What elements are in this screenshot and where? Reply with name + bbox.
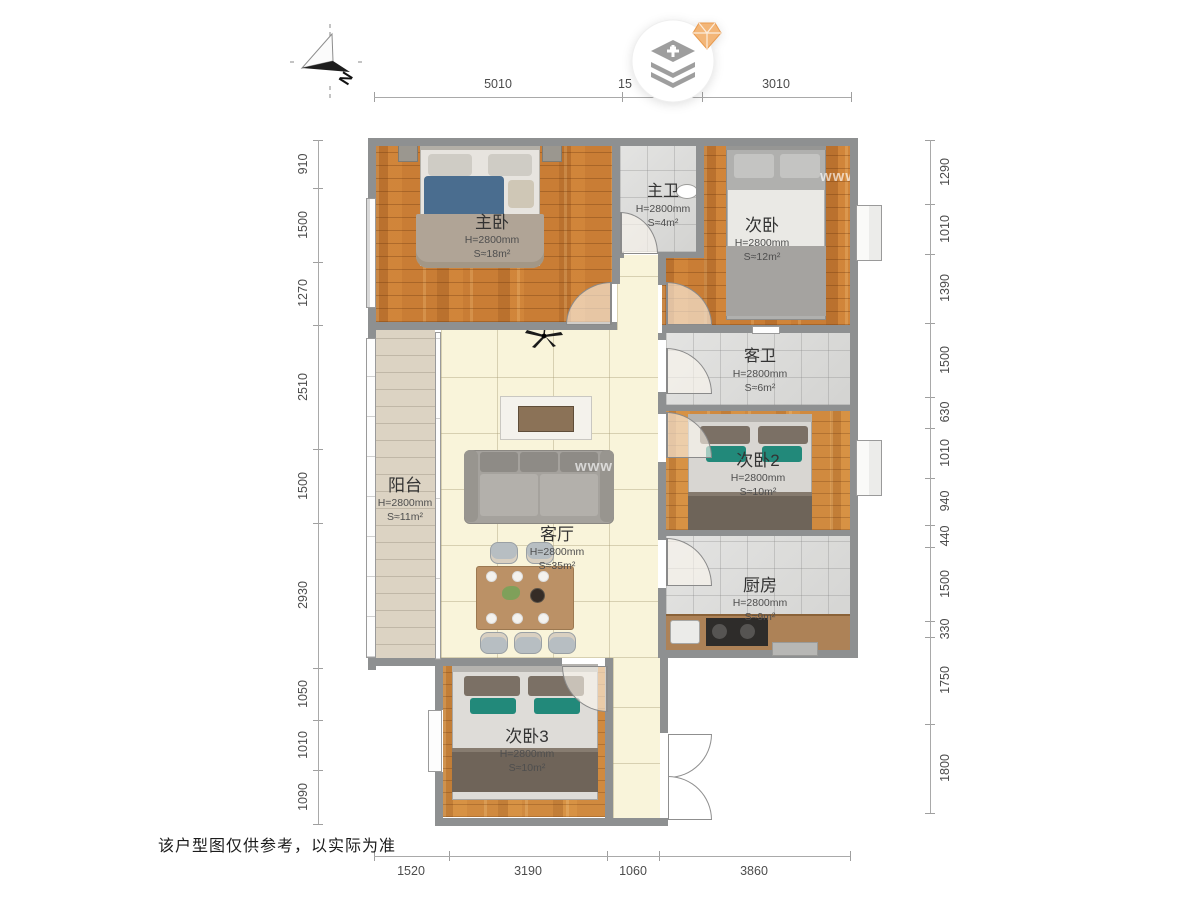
burner xyxy=(712,624,727,639)
dim-bottom-1: 1520 xyxy=(397,864,425,878)
pillow xyxy=(488,154,532,176)
wall-bottom xyxy=(435,818,668,826)
dim-right-1: 1290 xyxy=(938,158,952,186)
dim-line-bottom xyxy=(374,856,850,857)
dim-right-10: 330 xyxy=(938,619,952,640)
dining-chair xyxy=(480,632,508,654)
floor-corridor xyxy=(617,255,658,333)
window-bedroom4 xyxy=(428,710,442,772)
dining-chair xyxy=(514,632,542,654)
window-bedroom3-bay xyxy=(856,440,882,496)
wall-guestbath-bottom xyxy=(662,405,858,411)
room-label-master-bedroom: 主卧 H=2800mm S≈18m² xyxy=(432,212,552,262)
cushion xyxy=(508,180,534,208)
dim-left-7: 1050 xyxy=(296,680,310,708)
dim-right-9: 1500 xyxy=(938,570,952,598)
sofa-back-cushion xyxy=(480,452,518,472)
dim-left-4: 2510 xyxy=(296,373,310,401)
pillow xyxy=(734,154,774,178)
wall-kitchen-bottom xyxy=(660,650,858,658)
wall-corridor-right xyxy=(658,252,666,285)
dim-bottom-4: 3860 xyxy=(740,864,768,878)
wall-bedroom4-left xyxy=(435,772,443,825)
north-arrow-icon: N xyxy=(288,22,368,102)
pillow xyxy=(780,154,820,178)
room-label-bedroom3: 次卧2 H=2800mm S≈10m² xyxy=(698,450,818,500)
window-balcony xyxy=(366,338,376,658)
pillow xyxy=(464,676,520,696)
compass-label: N xyxy=(336,69,357,88)
room-label-bedroom4: 次卧3 H=2800mm S≈10m² xyxy=(467,726,587,776)
dim-left-6: 2930 xyxy=(296,581,310,609)
plate xyxy=(486,613,497,624)
wall-corridor-left xyxy=(612,258,620,284)
dim-bottom-2: 3190 xyxy=(514,864,542,878)
dim-left-2: 1500 xyxy=(296,211,310,239)
bed-headboard xyxy=(688,414,812,422)
kitchen-appliance xyxy=(772,642,818,656)
dim-right-6: 1010 xyxy=(938,439,952,467)
sofa-seat xyxy=(540,474,598,516)
dim-line-left xyxy=(318,140,319,824)
disclaimer-text: 该户型图仅供参考，以实际为准 xyxy=(158,832,396,856)
plate xyxy=(512,613,523,624)
window-bedroom2-bay xyxy=(856,205,882,261)
teal-pillow xyxy=(534,698,580,714)
wall-living-bottom xyxy=(368,658,562,666)
wall-hall-right xyxy=(658,333,666,340)
wall-hall-right xyxy=(658,462,666,540)
pillow xyxy=(428,154,472,176)
entry-door-lower xyxy=(668,776,712,820)
window-master-bedroom xyxy=(366,198,376,308)
dim-left-1: 910 xyxy=(296,154,310,175)
floor-entry-hall xyxy=(613,658,660,820)
dim-right-5: 630 xyxy=(938,402,952,423)
dim-left-9: 1090 xyxy=(296,783,310,811)
room-label-guest-bath: 客卫 H=2800mm S≈6m² xyxy=(700,347,820,395)
wall-bedroom3-bottom xyxy=(662,530,858,536)
wall-entry-right xyxy=(660,658,668,733)
room-label-bedroom2: 次卧 H=2800mm S≈12m² xyxy=(702,215,822,265)
dim-right-8: 440 xyxy=(938,526,952,547)
sofa-back-cushion xyxy=(520,452,558,472)
dim-line-top xyxy=(374,97,851,98)
table-plant xyxy=(502,586,520,600)
dim-top-1: 5010 xyxy=(484,77,512,91)
dim-right-3: 1390 xyxy=(938,274,952,302)
dim-left-3: 1270 xyxy=(296,279,310,307)
dim-right-12: 1800 xyxy=(938,754,952,782)
dim-right-11: 1750 xyxy=(938,666,952,694)
dim-left-5: 1500 xyxy=(296,472,310,500)
sofa-armrest xyxy=(464,450,478,522)
dim-line-right xyxy=(930,140,931,813)
dim-right-4: 1500 xyxy=(938,346,952,374)
wall-master-masterbath xyxy=(612,138,620,258)
dim-top-3: 3010 xyxy=(762,77,790,91)
sofa-seat xyxy=(480,474,538,516)
dim-left-8: 1010 xyxy=(296,731,310,759)
layer-stack-plus-logo[interactable] xyxy=(629,15,725,107)
entry-door-upper xyxy=(668,734,712,778)
wall-masterbath-bedroom2 xyxy=(696,138,704,258)
plate xyxy=(486,571,497,582)
floor-plan-page: www www 主卧 H=2800mm S≈18m² 主卫 H=2800mm S… xyxy=(0,0,1200,900)
kitchen-sink xyxy=(670,620,700,644)
window-balcony-slider xyxy=(435,332,441,660)
room-label-living: 客厅 H=2800mm S≈35m² xyxy=(497,524,617,574)
tv xyxy=(518,406,574,432)
dining-chair xyxy=(548,632,576,654)
wall-entry-right xyxy=(660,818,668,826)
watermark: www xyxy=(575,458,613,475)
wall-bedroom4-left xyxy=(435,662,443,710)
dim-right-2: 1010 xyxy=(938,215,952,243)
pillow xyxy=(758,426,808,444)
wall-hall-right xyxy=(658,588,666,658)
room-label-kitchen: 厨房 H=2800mm S≈9m² xyxy=(700,575,820,625)
window-guest-bath xyxy=(752,326,780,334)
dim-bottom-3: 1060 xyxy=(619,864,647,878)
dim-right-7: 940 xyxy=(938,491,952,512)
plate xyxy=(538,613,549,624)
bowl xyxy=(530,588,545,603)
teal-pillow xyxy=(470,698,516,714)
wall-hall-right xyxy=(658,392,666,414)
burner xyxy=(740,624,755,639)
